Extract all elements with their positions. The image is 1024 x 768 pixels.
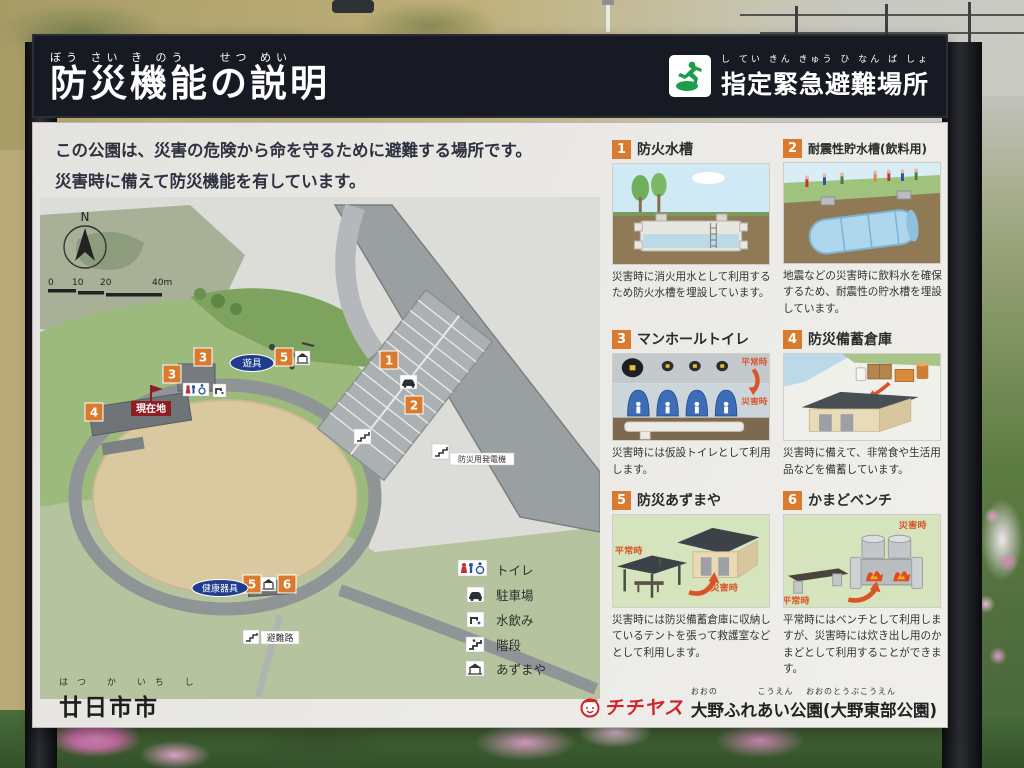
stairs-icon xyxy=(354,429,371,444)
panel-number: 3 xyxy=(612,330,631,349)
evacuation-label: 指定緊急避難場所 xyxy=(721,65,930,101)
svg-text:5: 5 xyxy=(248,578,256,592)
evacuation-site-block: し てい きん きゅう ひ なん ば しょ 指定緊急避難場所 xyxy=(669,52,930,101)
svg-text:6: 6 xyxy=(283,578,291,592)
panel-number: 6 xyxy=(783,491,802,510)
panel-description: 災害時に備えて、非常食や生活用品などを備蓄しています。 xyxy=(783,445,943,478)
drinking-water-icon xyxy=(213,384,226,397)
map-marker-5a: 5 xyxy=(275,348,293,366)
parked-car xyxy=(332,0,374,13)
playground-label: 遊具 xyxy=(230,355,274,372)
svg-text:現在地: 現在地 xyxy=(136,402,166,415)
svg-text:3: 3 xyxy=(168,368,176,382)
fence-rail xyxy=(740,14,1024,16)
map-marker-1: 1 xyxy=(380,351,398,369)
city-name-block: はつ か いち し 廿日市市 xyxy=(59,675,203,722)
city-name: 廿日市市 xyxy=(59,688,203,722)
svg-text:1: 1 xyxy=(385,354,393,368)
panel-title: 防火水槽 xyxy=(637,139,693,159)
svg-text:避難路: 避難路 xyxy=(266,632,293,644)
park-map-svg: 1 2 3 3 4 5 5 6 遊具 健康器具 xyxy=(40,197,600,699)
legend-water-label: 水飲み xyxy=(496,613,534,628)
panel-title: かまどベンチ xyxy=(808,490,892,510)
svg-text:20: 20 xyxy=(100,278,112,288)
panel-description: 平常時にはベンチとして利用しますが、災害時には炊き出し用のかまどとして利用するこ… xyxy=(783,612,943,678)
panel-manhole-toilet: 3 マンホールトイレ xyxy=(612,329,772,478)
legend-toilet-label: トイレ xyxy=(496,563,534,578)
svg-text:0: 0 xyxy=(48,278,54,288)
sign-body: この公園は、災害の危険から命を守るために避難する場所です。災害時に備えて防災機能… xyxy=(32,122,948,728)
panel-title: 防災備蓄倉庫 xyxy=(808,329,892,349)
sign-title-block: ぼう さい き のう せつ めい 防災機能の説明 xyxy=(50,49,330,104)
normal-time-label: 平常時 xyxy=(741,357,768,366)
evacuation-route-label: 避難路 xyxy=(261,631,299,644)
legend-gazebo-label: あずまや xyxy=(496,662,546,677)
svg-text:防災用発電機: 防災用発電機 xyxy=(458,454,506,464)
chichiyasu-logo: チチヤス xyxy=(579,693,684,721)
toilet-icon xyxy=(183,383,209,396)
park-name: 大野ふれあい公園(大野東部公園) xyxy=(691,697,937,721)
sign-board: ぼう さい き のう せつ めい 防災機能の説明 し てい きん きゅう ひ な… xyxy=(32,34,948,728)
stairs-icon xyxy=(432,444,449,459)
disaster-time-label: 災害時 xyxy=(898,519,927,531)
stairs-icon xyxy=(243,630,259,644)
svg-text:健康器具: 健康器具 xyxy=(202,583,238,595)
health-equipment-label: 健康器具 xyxy=(192,580,248,597)
parking-icon xyxy=(467,587,484,602)
panel-description: 災害時に消火用水として利用するため防火水槽を埋設しています。 xyxy=(612,269,772,302)
sign-header: ぼう さい き のう せつ めい 防災機能の説明 し てい きん きゅう ひ な… xyxy=(32,34,948,118)
svg-text:5: 5 xyxy=(280,351,288,365)
svg-text:40m: 40m xyxy=(152,278,172,288)
generator-label: 防災用発電機 xyxy=(450,453,514,465)
manhole-toilet-illustration: 平常時 災害時 xyxy=(612,353,770,441)
normal-time-label: 平常時 xyxy=(783,595,810,607)
panel-kamado-bench: 6 かまどベンチ 災害時 xyxy=(783,490,943,678)
park-name-block: おおの こうえん おおのとうぶこうえん 大野ふれあい公園(大野東部公園) xyxy=(691,686,937,721)
evacuation-site-text: し てい きん きゅう ひ なん ば しょ 指定緊急避難場所 xyxy=(721,52,930,101)
park-furigana: おおの こうえん おおのとうぶこうえん xyxy=(691,686,937,697)
gazebo-icon xyxy=(261,577,276,591)
gazebo-icon xyxy=(295,351,310,365)
panel-description: 災害時には防災備蓄倉庫に収納しているテントを張って救護室などとして利用します。 xyxy=(612,612,772,661)
map-marker-3b: 3 xyxy=(194,348,212,366)
svg-text:N: N xyxy=(81,210,90,224)
toilet-icon xyxy=(458,560,487,576)
map-marker-6: 6 xyxy=(278,575,296,593)
brand-mascot-icon xyxy=(579,696,601,718)
parking-icon xyxy=(400,375,417,389)
panel-disaster-gazebo: 5 防災あずまや 災害時 平常時 xyxy=(612,490,772,678)
panel-number: 4 xyxy=(783,330,802,349)
svg-text:2: 2 xyxy=(410,399,418,413)
intro-text: この公園は、災害の危険から命を守るために避難する場所です。災害時に備えて防災機能… xyxy=(55,135,532,198)
map-marker-3a: 3 xyxy=(163,365,181,383)
svg-text:10: 10 xyxy=(72,278,84,288)
stairs-icon xyxy=(466,637,484,652)
panel-fire-cistern: 1 防火水槽 xyxy=(612,139,772,317)
disaster-time-label: 災害時 xyxy=(741,397,768,406)
normal-time-label: 平常時 xyxy=(615,545,643,557)
panel-number: 2 xyxy=(783,139,802,158)
evacuation-furigana: し てい きん きゅう ひ なん ば しょ xyxy=(721,52,930,65)
quake-cistern-illustration xyxy=(783,162,941,264)
evacuation-area-icon xyxy=(669,55,711,97)
fire-cistern-illustration xyxy=(612,163,770,265)
svg-text:遊具: 遊具 xyxy=(242,358,262,370)
svg-text:3: 3 xyxy=(199,351,207,365)
photo-background: ぼう さい き のう せつ めい 防災機能の説明 し てい きん きゅう ひ な… xyxy=(0,0,1024,768)
intro-line2: 災害時に備えて防災機能を有しています。 xyxy=(55,172,366,191)
streetlight-pole xyxy=(606,0,610,32)
intro-line1: この公園は、災害の危険から命を守るために避難する場所です。 xyxy=(55,141,532,160)
city-furigana: はつ か いち し xyxy=(59,675,203,688)
panel-storage-warehouse: 4 防災備蓄倉庫 xyxy=(783,329,943,478)
svg-text:4: 4 xyxy=(90,406,98,420)
panel-title: 耐震性貯水槽(飲料用) xyxy=(808,140,927,157)
panel-description: 災害時には仮設トイレとして利用します。 xyxy=(612,445,772,478)
panel-number: 5 xyxy=(612,491,631,510)
map-marker-4: 4 xyxy=(85,403,103,421)
panel-quake-cistern: 2 耐震性貯水槽(飲料用) xyxy=(783,139,943,317)
drinking-water-icon xyxy=(467,612,484,627)
facility-panels: 1 防火水槽 xyxy=(612,139,943,678)
storage-warehouse-illustration xyxy=(783,353,941,441)
panel-number: 1 xyxy=(612,140,631,159)
sign-post-right xyxy=(942,42,982,768)
park-map: 1 2 3 3 4 5 5 6 遊具 健康器具 xyxy=(40,197,600,699)
brand-name: チチヤス xyxy=(604,693,684,720)
disaster-gazebo-illustration: 災害時 平常時 xyxy=(612,514,770,608)
panel-title: マンホールトイレ xyxy=(637,329,749,349)
legend-parking-label: 駐車場 xyxy=(496,588,534,603)
kamado-bench-illustration: 災害時 平常時 xyxy=(783,514,941,608)
panel-description: 地震などの災害時に飲料水を確保するため、耐震性の貯水槽を埋設しています。 xyxy=(783,268,943,317)
map-marker-2: 2 xyxy=(405,396,423,414)
page-title: 防災機能の説明 xyxy=(50,65,330,104)
footer-brand: チチヤス おおの こうえん おおのとうぶこうえん 大野ふれあい公園(大野東部公園… xyxy=(579,686,937,721)
legend-stairs-label: 階段 xyxy=(496,638,521,653)
gazebo-icon xyxy=(466,661,484,676)
panel-title: 防災あずまや xyxy=(637,490,721,510)
